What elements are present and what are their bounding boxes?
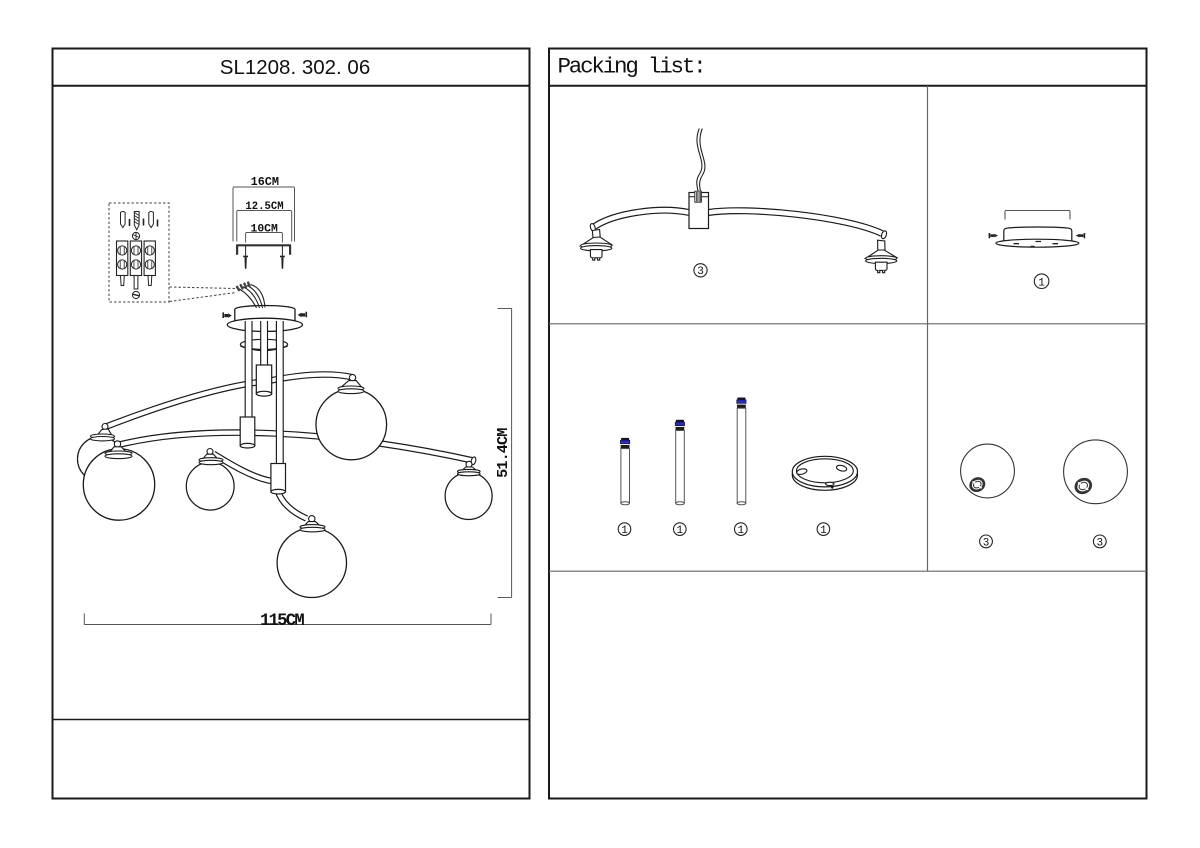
- svg-text:10CM: 10CM: [251, 223, 279, 235]
- svg-text:51.4CM: 51.4CM: [494, 428, 512, 478]
- svg-text:115CM: 115CM: [260, 612, 304, 631]
- svg-text:3: 3: [697, 266, 704, 278]
- svg-text:3: 3: [1096, 537, 1103, 549]
- svg-text:1: 1: [737, 525, 744, 537]
- svg-text:1: 1: [1038, 277, 1045, 289]
- svg-text:SL1208. 302. 06: SL1208. 302. 06: [220, 56, 370, 79]
- svg-text:1: 1: [621, 525, 628, 537]
- svg-text:Packing list:: Packing list:: [558, 54, 705, 80]
- svg-text:1: 1: [820, 525, 827, 537]
- svg-text:1: 1: [676, 525, 683, 537]
- svg-text:12.5CM: 12.5CM: [245, 201, 283, 213]
- svg-text:3: 3: [983, 537, 990, 549]
- svg-text:16CM: 16CM: [251, 175, 279, 189]
